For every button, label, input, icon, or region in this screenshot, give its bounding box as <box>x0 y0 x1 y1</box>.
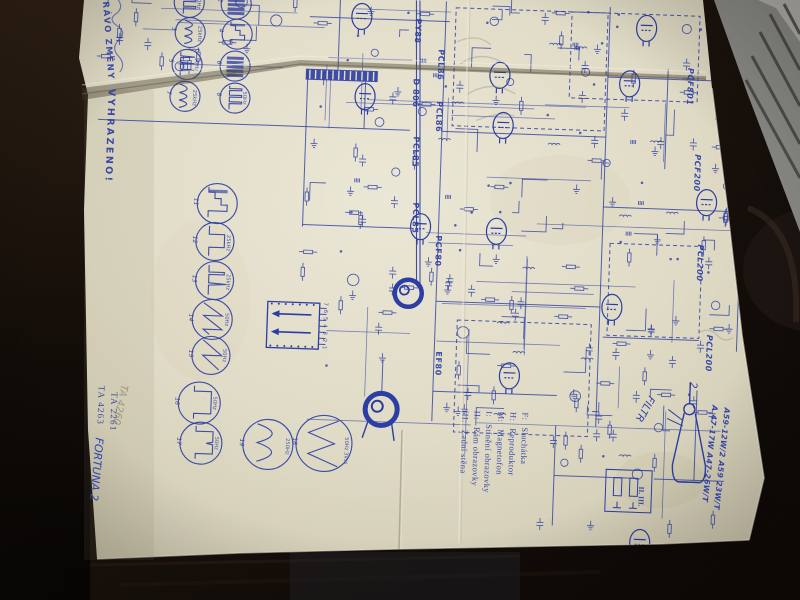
photo-canvas: 150Hz2325kHz4550Hz6725kHz850Hz111225kHz1… <box>0 0 800 600</box>
photo-of-schematic-on-desk: 150Hz2325kHz4550Hz6725kHz850Hz111225kHz1… <box>0 0 800 600</box>
photo-vignette <box>0 0 800 600</box>
